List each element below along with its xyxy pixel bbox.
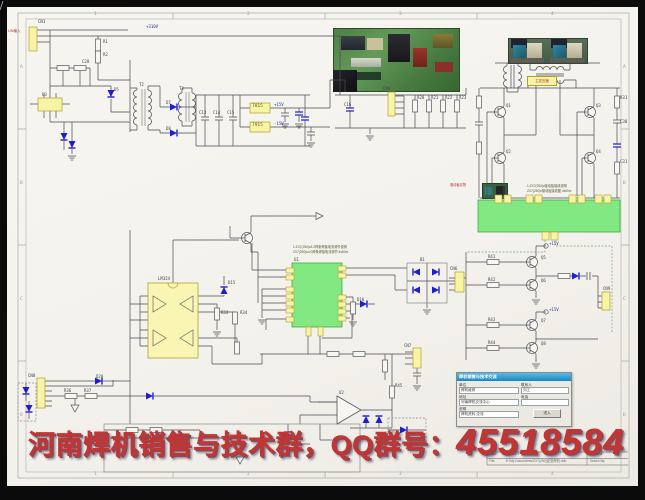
- pcb-connector: [388, 92, 395, 116]
- mosfet-q5: [524, 257, 538, 268]
- input-connector: [29, 27, 37, 51]
- mosfet-q8: [524, 343, 538, 354]
- form-addr-input[interactable]: 河南焊机交流中心: [459, 399, 519, 406]
- zone-aux-supply: [130, 80, 345, 146]
- igbt-q1: [492, 107, 506, 118]
- feedback-connector: [413, 348, 421, 368]
- opamp-u2: [337, 396, 361, 424]
- banner-qq-number: 45518584: [456, 421, 624, 462]
- mosfet-q7: [524, 320, 538, 331]
- igbt-q4: [582, 153, 596, 164]
- zone-bottom-left: [26, 380, 337, 424]
- zone-under-photo: [335, 88, 466, 134]
- scanned-schematic-screenshot: { "banner": { "group_text": "河南焊机销售与技术群，…: [0, 0, 645, 500]
- contact-form-dialog: 焊机销售与技术交流 单位 焊机维修 地址 河南焊机交流中心 说明 焊机资料.交流…: [456, 372, 572, 427]
- watermark-banner: 河南焊机销售与技术群，QQ群号：45518584: [28, 421, 624, 463]
- form-note-input[interactable]: 焊机资料.交流: [459, 411, 519, 418]
- form-title-bar: 焊机销售与技术交流: [457, 373, 571, 381]
- offpage-arrow: [316, 213, 323, 220]
- driver-module: [478, 200, 620, 232]
- zone-input-filter: [30, 30, 340, 154]
- form-submit-button[interactable]: 进入: [533, 409, 561, 418]
- panel-connector: [37, 378, 45, 408]
- control-ic: [38, 98, 62, 111]
- banner-qq-label: QQ群号：: [331, 430, 457, 460]
- igbt-q2: [492, 153, 506, 164]
- form-contact-input[interactable]: 刘工: [521, 387, 569, 394]
- bridge-connector: [455, 272, 464, 292]
- quad-opamp-ic: [148, 283, 198, 358]
- regulator-7915: [250, 122, 270, 132]
- form-unit-input[interactable]: 焊机维修: [459, 387, 519, 394]
- igbt-q3: [582, 107, 596, 118]
- mosfet-q6: [524, 280, 538, 291]
- form-phone-input[interactable]: [521, 399, 569, 406]
- zone-igbt-bridge: [479, 76, 620, 198]
- banner-group-text: 河南焊机销售与技术群，: [28, 430, 331, 460]
- gate-connector: [602, 292, 610, 310]
- regulator-7815: [250, 103, 270, 113]
- pwm-controller-ic: [292, 263, 342, 327]
- transistor: [239, 233, 253, 244]
